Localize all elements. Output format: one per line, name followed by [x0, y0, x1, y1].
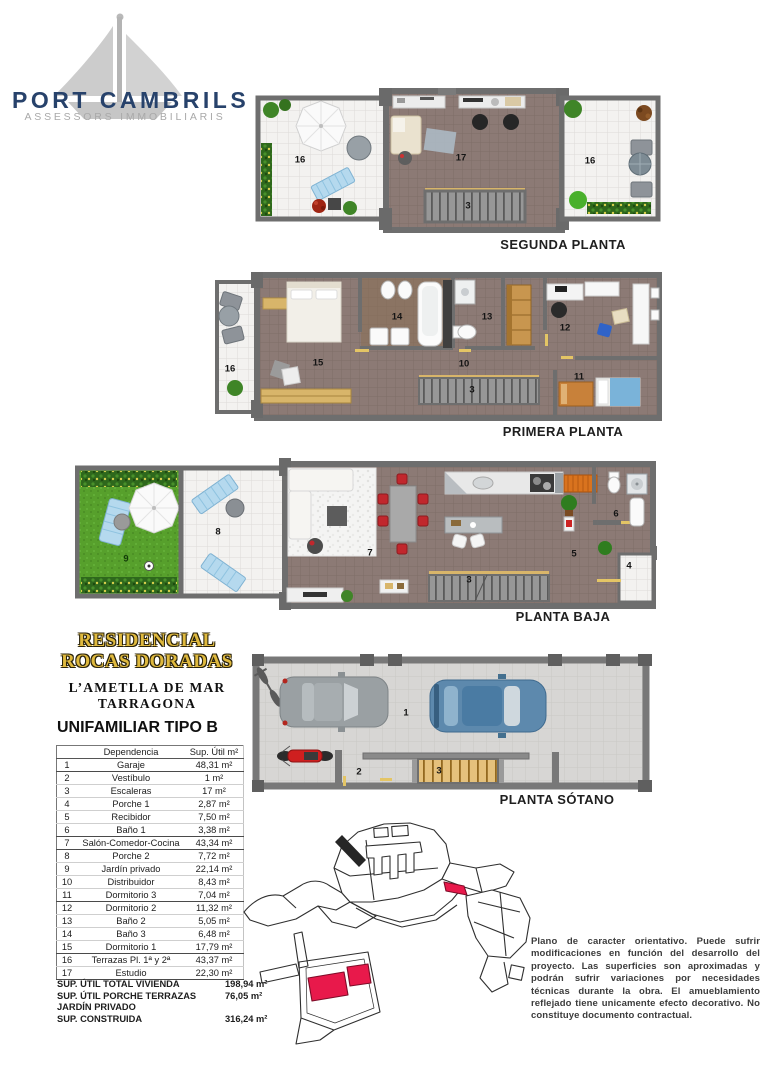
room-area: 7,04 m²: [185, 889, 244, 902]
room-number: 6: [57, 824, 78, 837]
room-label: 12: [560, 323, 571, 333]
table-row: 3 Escaleras 17 m²: [57, 785, 244, 798]
room-name: Baño 1: [77, 824, 185, 837]
room-name: Garaje: [77, 759, 185, 772]
room-name: Estudio: [77, 967, 185, 980]
plan-baja: 9 8 7 3 5 6 4: [75, 458, 657, 612]
plan-title-segunda: SEGUNDA PLANTA: [468, 237, 658, 252]
table-row: 15 Dormitorio 1 17,79 m²: [57, 941, 244, 954]
header-dependencia: Dependencia: [77, 746, 185, 759]
room-area: 7,50 m²: [185, 811, 244, 824]
room-number: 8: [57, 850, 78, 863]
room-number: 15: [57, 941, 78, 954]
room-name: Distribuidor: [77, 876, 185, 889]
plan-title-baja: PLANTA BAJA: [468, 609, 658, 624]
main-floor: [251, 272, 660, 418]
room-label: 11: [574, 372, 584, 382]
terrace-right: [562, 98, 658, 219]
logo-title: PORT CAMBRILS: [12, 87, 238, 114]
table-row: 8 Porche 2 7,72 m²: [57, 850, 244, 863]
logo-subtitle: ASSESSORS IMMOBILIARIS: [12, 111, 238, 123]
umbrella-icon: [296, 101, 346, 151]
room-area: 2,87 m²: [185, 798, 244, 811]
room-number: 3: [57, 785, 78, 798]
room-number: 5: [57, 811, 78, 824]
development-location: L’AMETLLA DE MAR TARRAGONA: [32, 680, 262, 712]
room-area: 22,14 m²: [185, 863, 244, 876]
location-line1: L’AMETLLA DE MAR: [32, 680, 262, 696]
development-name-line1: RESIDENCIAL: [32, 630, 262, 651]
room-area: 6,48 m²: [185, 928, 244, 941]
development-name: RESIDENCIAL ROCAS DORADAS: [32, 630, 262, 672]
room-name: Vestíbulo: [77, 772, 185, 785]
unit-type-title: UNIFAMILIAR TIPO B: [57, 719, 218, 737]
room-area: 17 m²: [185, 785, 244, 798]
room-label: 14: [392, 312, 403, 322]
table-row: 4 Porche 1 2,87 m²: [57, 798, 244, 811]
room-number: 7: [57, 837, 78, 850]
brochure-page: PORT CAMBRILS ASSESSORS IMMOBILIARIS: [0, 0, 763, 1080]
umbrella-icon: [129, 483, 179, 533]
room-name: Porche 2: [77, 850, 185, 863]
room-number: 10: [57, 876, 78, 889]
highlighted-plot-detail: [347, 964, 371, 986]
header-sup-util: Sup. Útil m²: [185, 746, 244, 759]
room-label: 1: [403, 708, 408, 718]
table-row: 11 Dormitorio 3 7,04 m²: [57, 889, 244, 902]
summary-label: SUP. ÚTIL PORCHE TERRAZAS JARDÍN PRIVADO: [57, 991, 225, 1014]
areas-table-header: Dependencia Sup. Útil m²: [57, 746, 244, 759]
table-row: 16 Terrazas Pl. 1ª y 2ª 43,37 m²: [57, 954, 244, 967]
room-area: 3,38 m²: [185, 824, 244, 837]
room-number: 13: [57, 915, 78, 928]
terrace-left: [258, 98, 386, 219]
summary-label: SUP. ÚTIL TOTAL VIVIENDA: [57, 979, 225, 991]
room-name: Baño 2: [77, 915, 185, 928]
room-area: 48,31 m²: [185, 759, 244, 772]
garage: [252, 654, 652, 792]
room-number: 16: [57, 954, 78, 967]
floor-plan-sotano-drawing: [252, 650, 660, 792]
table-row: 12 Dormitorio 2 11,32 m²: [57, 902, 244, 915]
table-row: 2 Vestíbulo 1 m²: [57, 772, 244, 785]
summary-label: SUP. CONSTRUIDA: [57, 1014, 225, 1026]
room-area: 11,32 m²: [185, 902, 244, 915]
room-label: 3: [469, 385, 474, 395]
room-label: 4: [626, 561, 631, 571]
room-number: 9: [57, 863, 78, 876]
room-label: 17: [456, 153, 467, 163]
room-number: 4: [57, 798, 78, 811]
table-row: 10 Distribuidor 8,43 m²: [57, 876, 244, 889]
room-area: 43,37 m²: [185, 954, 244, 967]
development-name-line2: ROCAS DORADAS: [32, 651, 262, 672]
table-row: 7 Salón-Comedor-Cocina 43,34 m²: [57, 837, 244, 850]
porch-2: [181, 468, 285, 596]
room-number: 12: [57, 902, 78, 915]
plan-sotano: 1 2 3: [252, 650, 660, 792]
floor-plan-baja-drawing: [75, 458, 657, 612]
car-icon: [430, 674, 546, 738]
room-area: 22,30 m²: [185, 967, 244, 980]
room-area: 17,79 m²: [185, 941, 244, 954]
room-name: Recibidor: [77, 811, 185, 824]
room-name: Salón-Comedor-Cocina: [77, 837, 185, 850]
logo: PORT CAMBRILS ASSESSORS IMMOBILIARIS: [12, 12, 238, 137]
room-number: 14: [57, 928, 78, 941]
room-name: Porche 1: [77, 798, 185, 811]
room-name: Dormitorio 1: [77, 941, 185, 954]
room-label: 9: [123, 554, 128, 564]
room-name: Dormitorio 3: [77, 889, 185, 902]
areas-table-body: 1 Garaje 48,31 m² 2 Vestíbulo 1 m² 3 Esc…: [57, 759, 244, 980]
room-number: 17: [57, 967, 78, 980]
room-name: Escaleras: [77, 785, 185, 798]
room-area: 43,34 m²: [185, 837, 244, 850]
site-map-drawing: [238, 816, 543, 1056]
room-name: Baño 3: [77, 928, 185, 941]
floor-plan-primera-drawing: [215, 270, 662, 424]
table-row: 1 Garaje 48,31 m²: [57, 759, 244, 772]
room-area: 1 m²: [185, 772, 244, 785]
table-row: 6 Baño 1 3,38 m²: [57, 824, 244, 837]
location-line2: TARRAGONA: [32, 696, 262, 712]
table-row: 5 Recibidor 7,50 m²: [57, 811, 244, 824]
room-area: 7,72 m²: [185, 850, 244, 863]
room-label: 5: [571, 549, 576, 559]
room-label: 7: [367, 548, 372, 558]
room-area: 8,43 m²: [185, 876, 244, 889]
plan-primera: 16 15 14 13 10 3 12 11: [215, 270, 662, 424]
room-number: 1: [57, 759, 78, 772]
room-label: 8: [215, 527, 220, 537]
room-name: Jardín privado: [77, 863, 185, 876]
room-label: 15: [313, 358, 324, 368]
studio-room: [379, 88, 569, 230]
plan-title-sotano: PLANTA SÓTANO: [462, 792, 652, 807]
room-number: 2: [57, 772, 78, 785]
header-empty: [57, 746, 78, 759]
room-label: 2: [356, 767, 361, 777]
site-map: [238, 816, 543, 1056]
terrace-left: [217, 282, 257, 412]
room-label: 3: [436, 766, 441, 776]
living-kitchen: [279, 458, 657, 610]
room-label: 13: [482, 312, 493, 322]
room-area: 5,05 m²: [185, 915, 244, 928]
private-garden: [77, 468, 181, 596]
highlighted-plot-detail: [308, 972, 348, 1001]
table-row: 17 Estudio 22,30 m²: [57, 967, 244, 980]
plan-title-primera: PRIMERA PLANTA: [468, 424, 658, 439]
bed-icon: [287, 282, 341, 342]
room-label: 16: [585, 156, 596, 166]
room-name: Terrazas Pl. 1ª y 2ª: [77, 954, 185, 967]
table-row: 9 Jardín privado 22,14 m²: [57, 863, 244, 876]
plan-segunda: 16 17 3 16: [255, 88, 661, 233]
table-row: 14 Baño 3 6,48 m²: [57, 928, 244, 941]
room-label: 16: [295, 155, 306, 165]
areas-table: Dependencia Sup. Útil m² 1 Garaje 48,31 …: [56, 745, 244, 980]
room-name: Dormitorio 2: [77, 902, 185, 915]
room-label: 10: [459, 359, 470, 369]
room-label: 16: [225, 364, 236, 374]
disclaimer-text: Plano de caracter orientativo. Puede suf…: [531, 936, 760, 1023]
table-row: 13 Baño 2 5,05 m²: [57, 915, 244, 928]
room-label: 3: [465, 201, 470, 211]
room-label: 3: [466, 575, 471, 585]
car-icon: [280, 672, 388, 732]
room-label: 6: [613, 509, 618, 519]
ball-icon: [145, 562, 154, 571]
room-number: 11: [57, 889, 78, 902]
